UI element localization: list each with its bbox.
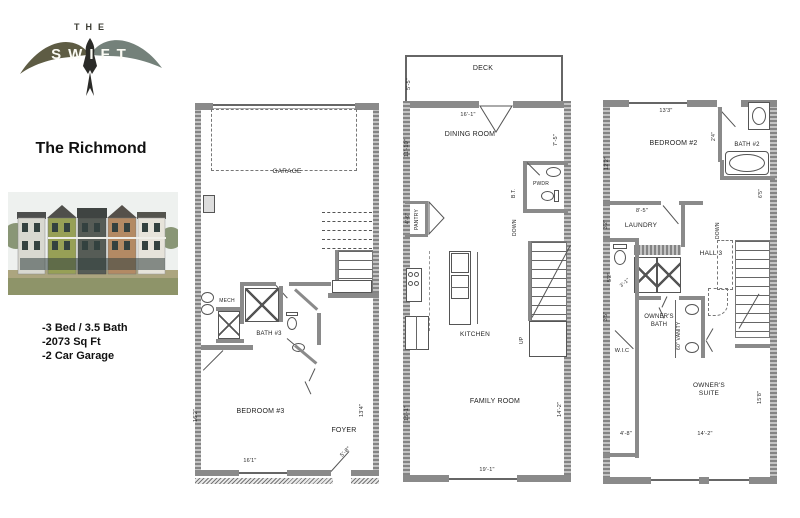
opening-zigzag — [305, 381, 312, 394]
window — [651, 479, 699, 481]
garage-outline — [211, 109, 357, 171]
dim-label: 11'-10" — [404, 130, 414, 166]
dim-label: 6'5" — [758, 182, 766, 204]
swift-tail — [86, 72, 94, 96]
stair-opening-rail — [717, 240, 733, 290]
wall — [373, 103, 379, 476]
room-label-kitchen: KITCHEN — [451, 331, 499, 339]
wall — [403, 475, 449, 482]
sink — [685, 342, 699, 353]
wall — [770, 100, 777, 484]
dim-label: 15'-1" — [404, 397, 414, 429]
room-label-bath3: BATH #3 — [243, 331, 295, 339]
logo-swift-text: SWIFT — [51, 46, 133, 63]
toilet-tank — [613, 244, 627, 249]
toilet — [287, 317, 297, 330]
wall — [679, 296, 703, 300]
stoop-hatch — [351, 478, 379, 484]
room-label-wic: W.I.C — [607, 348, 637, 355]
wall — [289, 282, 331, 286]
stair-tread-dashed — [322, 221, 372, 222]
wall — [195, 470, 239, 476]
wall — [523, 209, 568, 213]
dim-label: 3'-1" — [615, 274, 634, 292]
wall — [603, 201, 661, 205]
counter-line — [429, 251, 430, 331]
wall — [634, 245, 681, 255]
room-label-bedroom3: BEDROOM #3 — [218, 408, 303, 417]
floorplan-sheet: THE SWIFT The Richmond -3 Bed / 3.5 Bath… — [0, 0, 800, 518]
deck-wall — [405, 55, 563, 57]
wall — [603, 453, 639, 457]
dim-label: 13'3" — [641, 108, 691, 115]
room-label-garage: GARAGE — [243, 168, 331, 176]
stairs-down-label: DOWN — [512, 215, 520, 241]
sink — [685, 304, 699, 315]
dim-label: 3'5" — [603, 306, 611, 326]
wall — [517, 475, 571, 482]
dim-label: 4'-8" — [611, 431, 641, 438]
stair-tread-dashed — [322, 239, 372, 240]
owners-shower — [708, 288, 728, 316]
dim-label: 16'1" — [225, 458, 275, 465]
opening-zigzag — [706, 340, 713, 352]
window — [449, 478, 517, 480]
dim-label: 2'4" — [711, 126, 719, 146]
wall — [355, 103, 379, 110]
water-heater — [201, 304, 214, 315]
stoop-hatch — [195, 478, 333, 484]
door-swing — [615, 330, 634, 349]
room-label-owners-bath: OWNER'S BATH — [639, 314, 679, 329]
toilet-tank — [286, 312, 298, 316]
room-label-family: FAMILY ROOM — [455, 398, 535, 407]
room-label-pwdr: PWDR — [527, 181, 555, 187]
model-name-title: The Richmond — [12, 140, 170, 158]
room-label-deck: DECK — [453, 65, 513, 74]
floorplan-main-floor: DECK 5'-5" 16'-1" DINING ROOM 11'-10" 7'… — [403, 55, 571, 487]
wall — [603, 477, 651, 484]
bt-label: B.T. — [511, 185, 519, 201]
stair-tread-dashed — [322, 248, 372, 249]
wall — [240, 282, 276, 286]
deck-wall — [561, 55, 563, 101]
dim-label: 12'2" — [604, 148, 614, 178]
linen-closet — [218, 311, 240, 339]
bedroom-door-swing — [203, 350, 224, 371]
refrigerator — [405, 316, 429, 350]
wall — [735, 344, 770, 348]
deck-door — [479, 105, 513, 133]
stair-tread-dashed — [322, 230, 372, 231]
wall — [681, 201, 685, 247]
room-label-dining: DINING ROOM — [430, 131, 510, 140]
wall — [513, 101, 571, 108]
room-label-foyer: FOYER — [323, 427, 365, 436]
dim-label: 5'-5" — [406, 69, 416, 99]
dim-label: 4'-6" — [405, 204, 413, 234]
burner — [408, 281, 413, 286]
dim-label: 16'-1" — [438, 112, 498, 119]
burner — [408, 272, 413, 277]
dim-label: 3'2" — [603, 214, 611, 234]
dim-label: 14'-2" — [557, 393, 567, 425]
swift-logo: THE SWIFT — [15, 12, 165, 117]
dryer — [657, 257, 681, 293]
dim-label: 15'8" — [757, 384, 767, 410]
wall — [635, 238, 639, 302]
electrical-panel — [203, 195, 215, 213]
wall — [216, 339, 244, 343]
wall — [687, 100, 717, 107]
wall — [317, 313, 321, 345]
wall — [701, 296, 705, 358]
toilet-tank — [554, 190, 559, 202]
spec-sqft: -2073 Sq Ft — [42, 336, 101, 348]
wall — [240, 286, 244, 324]
spec-beds-baths: -3 Bed / 3.5 Bath — [42, 322, 128, 334]
angled-wall — [294, 344, 317, 364]
burner — [414, 272, 419, 277]
burner — [414, 281, 419, 286]
wall — [279, 286, 283, 322]
townhome-rendering-image — [8, 192, 178, 295]
logo-the-text: THE — [74, 22, 110, 32]
angled-wall — [294, 288, 318, 310]
tub-basin — [729, 154, 765, 172]
dim-label: 5'2" — [607, 268, 615, 286]
window — [709, 479, 749, 481]
refrigerator-divider — [416, 316, 417, 350]
wall — [603, 238, 637, 242]
dim-label: 19'-1" — [463, 467, 511, 474]
wall — [403, 101, 479, 108]
water-heater — [201, 292, 214, 303]
dim-label: 14'-2" — [685, 431, 725, 438]
wall — [639, 296, 661, 300]
door-swing — [663, 205, 679, 224]
wall — [699, 477, 709, 484]
window — [629, 102, 687, 104]
opening-zigzag — [706, 328, 713, 340]
toilet — [614, 250, 626, 265]
mech-label: MECH — [215, 298, 239, 304]
room-label-laundry: LAUNDRY — [617, 222, 665, 230]
shower-drain — [752, 107, 766, 125]
floorplan-upper-floor: 13'3" BEDROOM #2 12'2" BATH #2 2'4" 6'5"… — [601, 98, 779, 488]
wall — [201, 345, 253, 350]
foyer-closet — [332, 280, 372, 293]
room-label-pantry: PANTRY — [414, 203, 422, 235]
dim-label: 16'2" — [193, 400, 203, 430]
vanity-label: 60" VANITY — [676, 318, 684, 354]
room-label-bath2: BATH #2 — [725, 142, 769, 150]
dim-label: 7'-5" — [553, 125, 563, 155]
room-label-owners-suite: OWNER'S SUITE — [683, 382, 735, 398]
opening-zigzag — [661, 296, 667, 307]
island-cabinet — [451, 253, 469, 273]
spec-garage: -2 Car Garage — [42, 350, 114, 362]
window — [239, 472, 287, 474]
dim-label: 5'-8" — [334, 441, 357, 464]
wall — [328, 293, 379, 298]
counter-edge — [477, 252, 478, 324]
floorplan-first-floor: GARAGE MECH BATH #3 BEDR — [193, 100, 381, 490]
island-sink-divider — [451, 287, 469, 288]
wall — [603, 100, 629, 107]
dim-label: 8'-5" — [625, 208, 659, 215]
wall — [287, 470, 331, 476]
stair-landing — [529, 321, 567, 357]
pantry-door — [428, 201, 446, 235]
wall — [351, 470, 379, 476]
dim-label: 13'4" — [359, 395, 369, 425]
garage-door-line — [213, 104, 355, 106]
wall — [749, 477, 777, 484]
sink — [546, 167, 561, 177]
wall — [720, 176, 775, 180]
stairs-up-label: UP — [519, 331, 527, 349]
opening-zigzag — [309, 368, 316, 381]
toilet — [541, 191, 554, 201]
shower — [245, 288, 279, 322]
room-label-bedroom2: BEDROOM #2 — [631, 140, 716, 149]
stair-tread-dashed — [322, 212, 372, 213]
